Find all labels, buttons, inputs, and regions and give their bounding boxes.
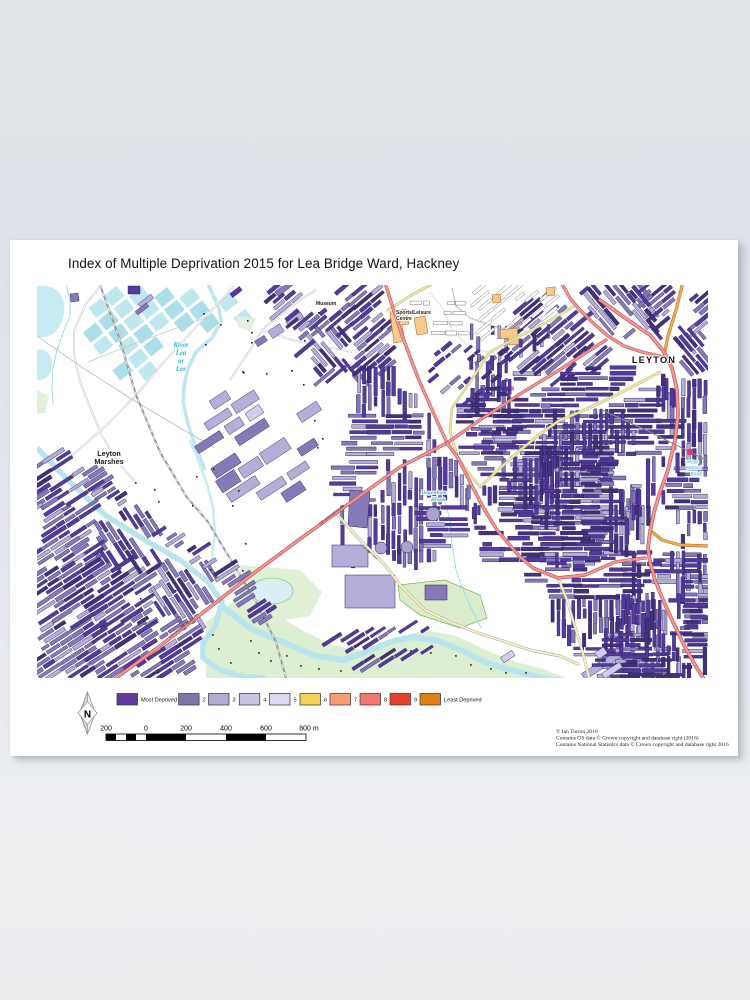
svg-text:2: 2 — [203, 698, 206, 704]
svg-text:Leyton: Leyton — [685, 459, 699, 464]
svg-text:© Ian Turton 2016: © Ian Turton 2016 — [556, 728, 598, 735]
svg-text:400: 400 — [220, 726, 232, 733]
svg-text:Lea: Lea — [175, 350, 187, 357]
svg-text:3: 3 — [233, 698, 236, 704]
svg-text:800 m: 800 m — [299, 726, 319, 733]
svg-text:Contains National Statistics d: Contains National Statistics data © Crow… — [556, 741, 729, 748]
svg-text:200: 200 — [100, 726, 112, 733]
svg-text:4: 4 — [263, 698, 266, 704]
svg-text:or: or — [178, 358, 184, 365]
svg-text:LEYTON: LEYTON — [632, 355, 676, 365]
svg-text:6: 6 — [324, 698, 327, 704]
svg-text:5: 5 — [294, 698, 297, 704]
svg-text:8: 8 — [384, 698, 387, 704]
svg-text:600: 600 — [260, 726, 272, 733]
svg-text:Museum: Museum — [316, 301, 337, 307]
svg-text:200: 200 — [180, 726, 192, 733]
svg-text:Marshes: Marshes — [94, 457, 123, 466]
svg-text:0: 0 — [144, 726, 148, 733]
svg-text:Brook: Brook — [430, 497, 446, 503]
svg-text:Least Deprived: Least Deprived — [444, 698, 482, 704]
svg-text:Midland: Midland — [686, 465, 702, 470]
svg-text:River: River — [172, 342, 188, 349]
svg-text:Centre: Centre — [396, 316, 412, 322]
svg-text:N: N — [84, 710, 91, 721]
svg-text:Lee: Lee — [175, 366, 186, 373]
svg-text:Dagenham: Dagenham — [420, 490, 447, 496]
svg-text:9: 9 — [414, 698, 417, 704]
svg-text:7: 7 — [354, 698, 357, 704]
svg-text:Road: Road — [691, 471, 702, 476]
svg-text:Contains OS data © Crown copyr: Contains OS data © Crown copyright and d… — [556, 735, 699, 742]
svg-text:Most Deprived: Most Deprived — [141, 698, 177, 704]
